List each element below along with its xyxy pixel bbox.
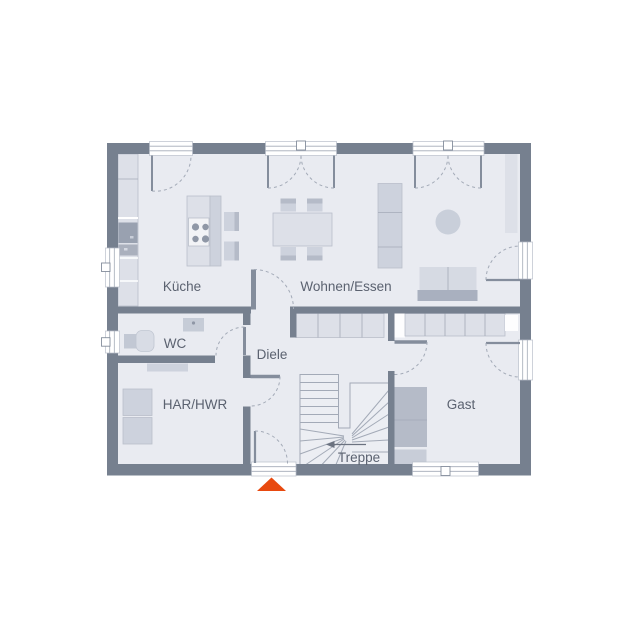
window-kitchen-left [102, 248, 120, 287]
diele-niche [395, 314, 406, 338]
washbasin-icon [183, 318, 204, 332]
gast-closet [405, 314, 505, 337]
living-cabinet [378, 184, 402, 269]
wall-shelf [505, 154, 518, 233]
oven-icon [119, 223, 138, 244]
washer-icon [123, 389, 152, 416]
window-handle-icon [297, 141, 306, 150]
window-handle-icon [444, 141, 453, 150]
appliance-icon [119, 245, 138, 256]
room-label-gast: Gast [447, 397, 476, 412]
room-label-wohnen-essen: Wohnen/Essen [300, 279, 391, 294]
room-label-wc: WC [164, 336, 187, 351]
kitchen-island [187, 196, 221, 266]
room-label-kueche: Küche [163, 279, 201, 294]
round-table [436, 210, 461, 235]
window-handle-icon [441, 467, 450, 476]
sofa [418, 267, 478, 301]
gast-wardrobe [393, 387, 427, 465]
dryer-icon [123, 418, 152, 445]
window-gast-bottom [413, 462, 479, 476]
window-wc-left [102, 331, 120, 353]
room-label-har-hwr: HAR/HWR [163, 397, 228, 412]
floor-plan-canvas: Küche Wohnen/Essen WC Diele HAR/HWR Gast… [0, 0, 636, 636]
window-handle-icon [102, 338, 111, 347]
window-handle-icon [102, 263, 111, 272]
gast-niche [505, 315, 518, 331]
kitchen-counter [118, 154, 138, 306]
room-label-treppe: Treppe [338, 450, 380, 465]
entrance-arrow-icon [257, 478, 286, 492]
diele-closet [296, 314, 384, 338]
room-label-diele: Diele [257, 347, 288, 362]
floor-plan-page: Küche Wohnen/Essen WC Diele HAR/HWR Gast… [0, 0, 636, 636]
